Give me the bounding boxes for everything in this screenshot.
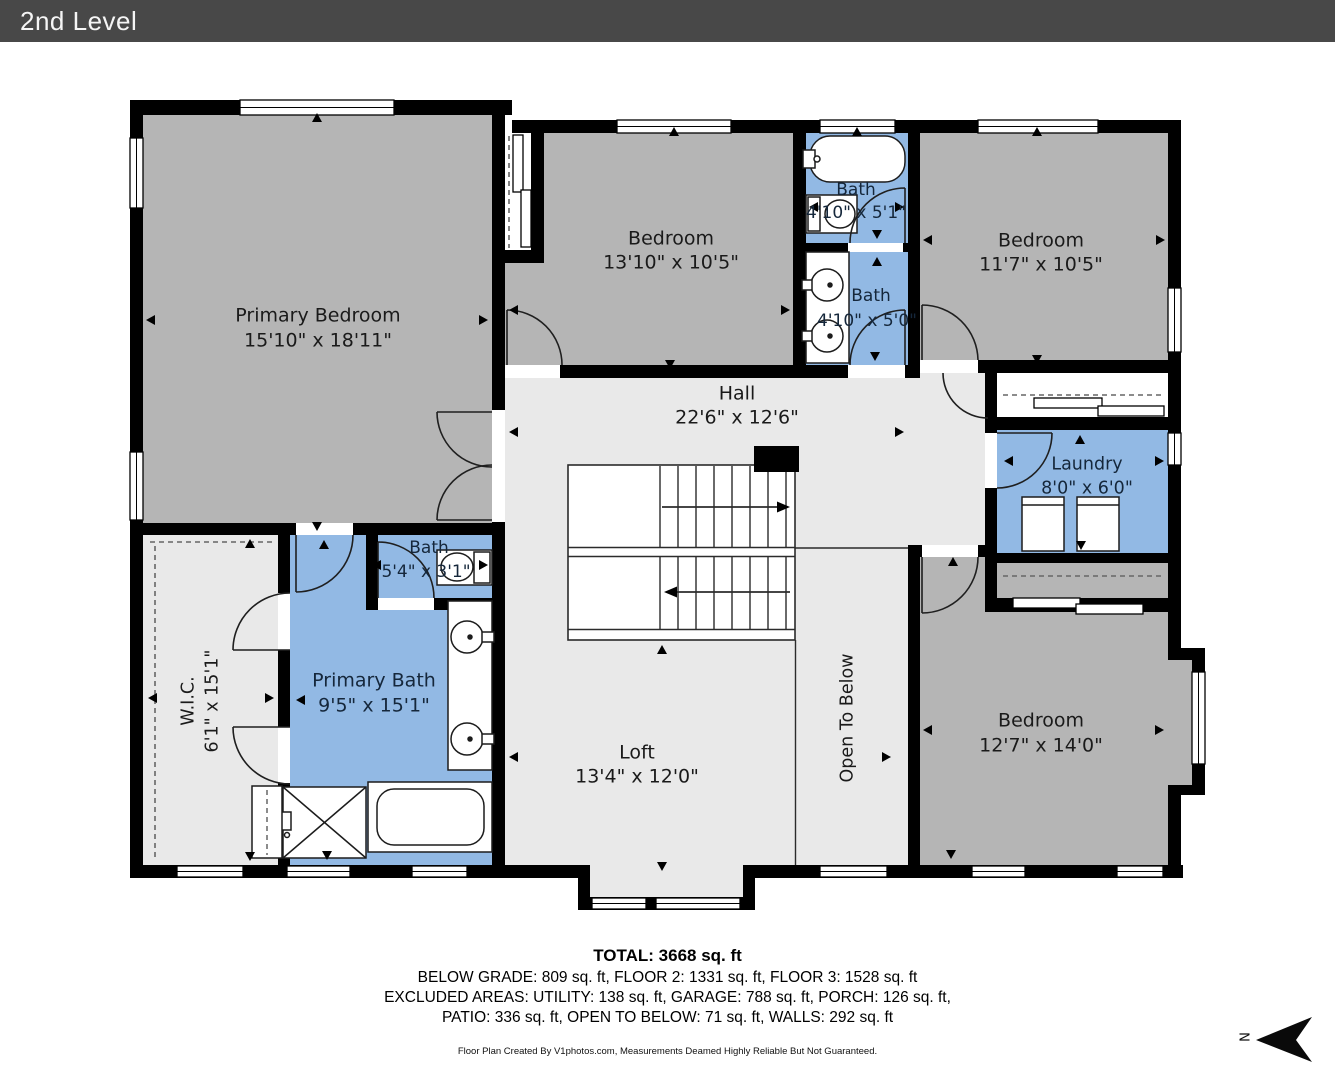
area-summary: TOTAL: 3668 sq. ft BELOW GRADE: 809 sq. …	[0, 946, 1335, 1028]
room-dims-laundry: 8'0" x 6'0"	[1041, 479, 1133, 500]
bathtub-primary-icon	[368, 782, 492, 852]
room-label-bath-upper: Bath	[836, 180, 876, 200]
north-label: N	[1236, 1032, 1251, 1042]
room-label-bedroom-top: Bedroom	[628, 228, 714, 251]
room-dims-bedroom-right: 11'7" x 10'5"	[979, 254, 1103, 277]
room-dims-primary-bath: 9'5" x 15'1"	[318, 695, 430, 718]
room-label-primary-bedroom: Primary Bedroom	[235, 305, 400, 328]
room-dims-wic: 6'1" x 15'1"	[203, 650, 224, 753]
linen-cabinet-icon	[252, 786, 282, 858]
room-label-bath-lower: Bath	[851, 286, 891, 306]
room-label-open-to-below: Open To Below	[838, 654, 859, 783]
room-dims-hall: 22'6" x 12'6"	[675, 407, 799, 430]
shower-icon	[281, 787, 366, 858]
floor-plan-page: 2nd Level	[0, 0, 1335, 1080]
floor-plan	[0, 0, 1335, 1080]
vanity-sinks-icon	[448, 601, 494, 770]
room-dims-bedroom-bottom: 12'7" x 14'0"	[979, 735, 1103, 758]
summary-line2: EXCLUDED AREAS: UTILITY: 138 sq. ft, GAR…	[0, 988, 1335, 1008]
summary-line3: PATIO: 336 sq. ft, OPEN TO BELOW: 71 sq.…	[0, 1008, 1335, 1028]
room-dims-bath-upper: 4'10" x 5'1"	[806, 203, 906, 223]
room-label-hall: Hall	[719, 383, 756, 406]
room-label-bedroom-right: Bedroom	[998, 230, 1084, 253]
room-label-laundry: Laundry	[1051, 455, 1122, 476]
room-dims-bath-lower: 4'10" x 5'0"	[817, 311, 917, 331]
room-dims-bedroom-top: 13'10" x 10'5"	[603, 252, 739, 275]
bathtub-icon	[803, 136, 905, 182]
room-label-loft: Loft	[619, 742, 655, 765]
double-sink-icon	[802, 252, 849, 363]
washer-icon	[1022, 497, 1064, 551]
room-label-bath-small: Bath	[409, 538, 449, 558]
summary-line1: BELOW GRADE: 809 sq. ft, FLOOR 2: 1331 s…	[0, 968, 1335, 988]
room-label-primary-bath: Primary Bath	[312, 670, 436, 693]
room-dims-primary-bedroom: 15'10" x 18'11"	[244, 330, 392, 353]
summary-total: TOTAL: 3668 sq. ft	[0, 946, 1335, 966]
credit-line: Floor Plan Created By V1photos.com, Meas…	[0, 1046, 1335, 1057]
room-dims-bath-small: 5'4" x 3'1"	[381, 562, 470, 582]
room-label-bedroom-bottom: Bedroom	[998, 710, 1084, 733]
room-dims-loft: 13'4" x 12'0"	[575, 766, 699, 789]
room-label-wic: W.I.C.	[179, 676, 200, 725]
